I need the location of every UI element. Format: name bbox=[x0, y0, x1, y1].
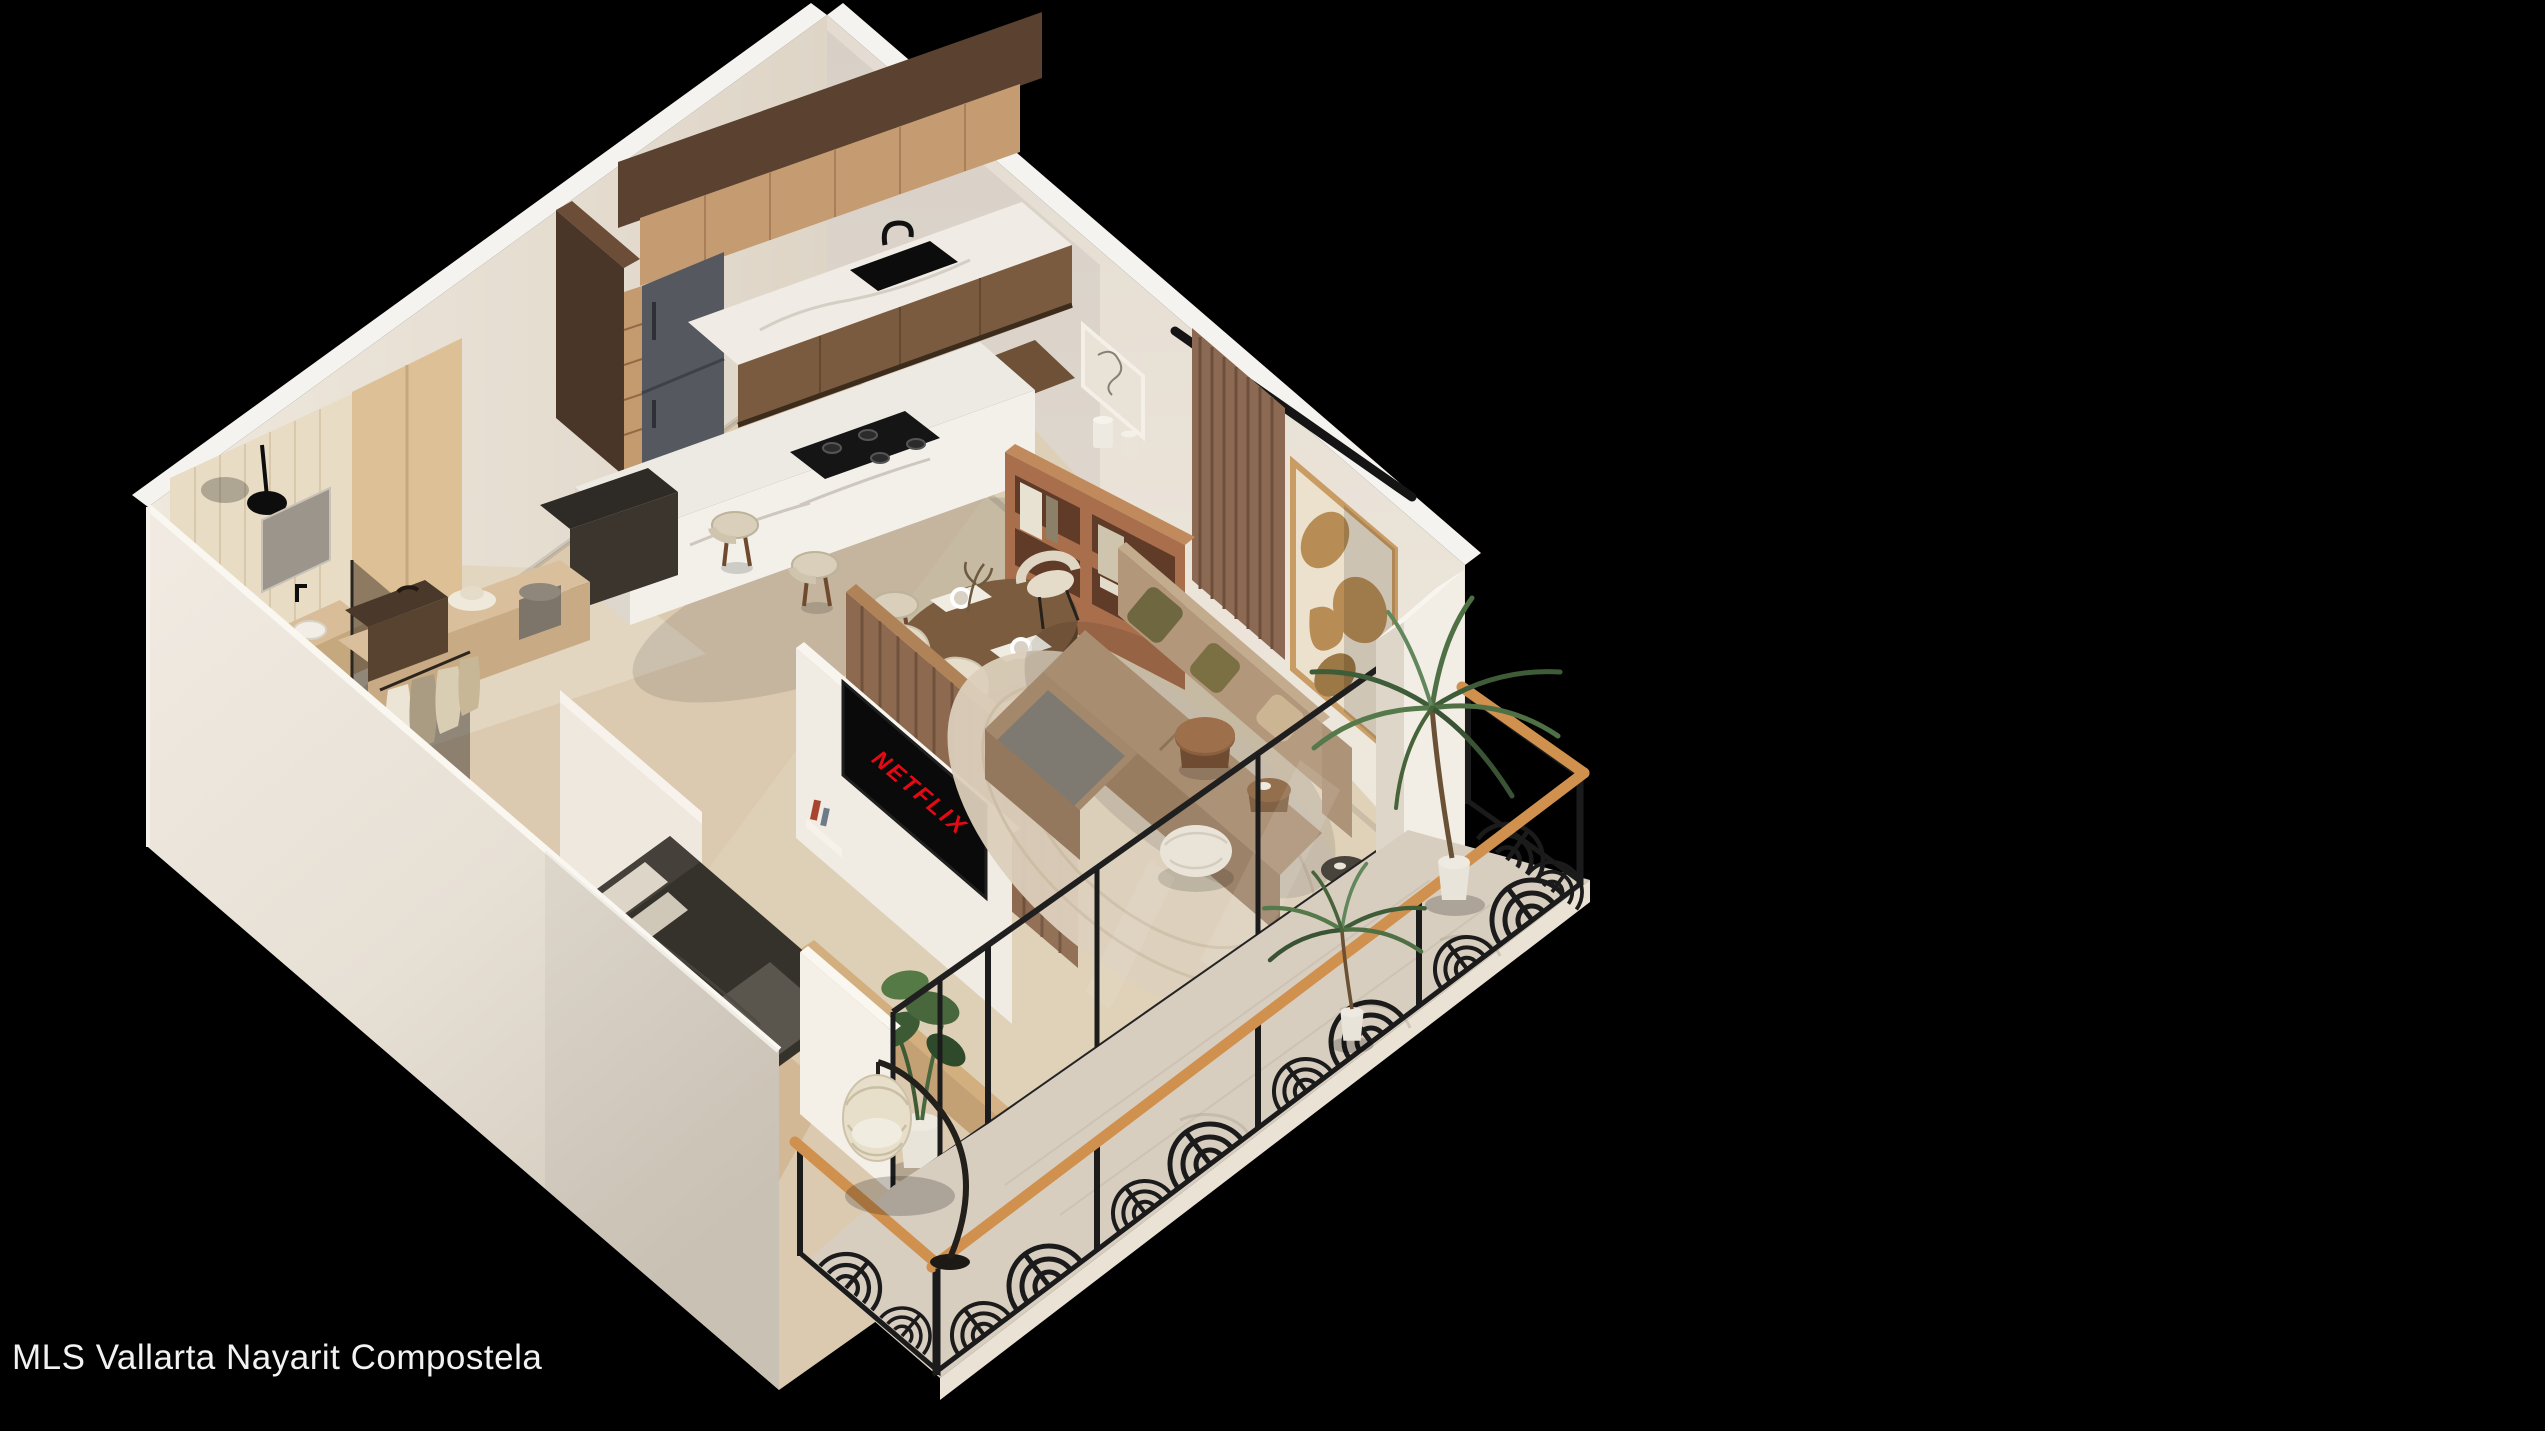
open-shelf bbox=[624, 286, 642, 484]
floor-plan-render: NETFLIX bbox=[0, 0, 2545, 1431]
chair-cushion bbox=[852, 1118, 902, 1148]
watermark-caption: MLS Vallarta Nayarit Compostela bbox=[12, 1338, 542, 1378]
screenshot-canvas: NETFLIX bbox=[0, 0, 2545, 1431]
coffee-table bbox=[1175, 717, 1235, 780]
